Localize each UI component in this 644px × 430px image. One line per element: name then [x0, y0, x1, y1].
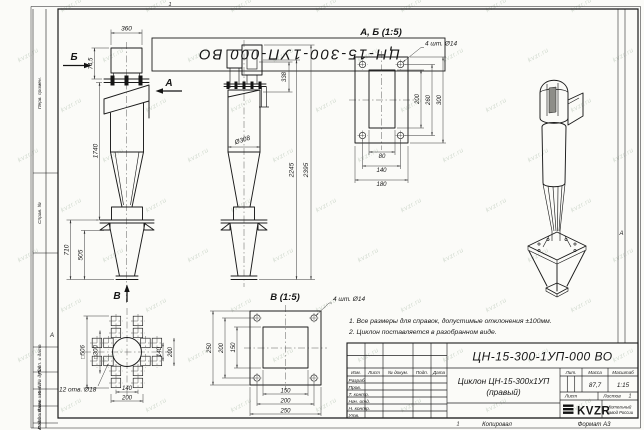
- view-title: В (1:5): [270, 292, 300, 303]
- dim-label: 200: [279, 399, 291, 405]
- notes: 1. Все размеры для справок, допустимые о…: [348, 317, 552, 336]
- logo-text: KVZR: [577, 406, 611, 418]
- zone-number-top: 1: [168, 2, 171, 8]
- product-name: Циклон ЦН-15-300х1УП: [458, 376, 550, 386]
- dim-label: 74,5: [89, 57, 95, 69]
- dim-label: 505: [78, 249, 85, 260]
- dim-label: 250: [279, 409, 291, 415]
- side-view: Ø308 338 2245 2395: [221, 40, 315, 287]
- dim-label: 1740: [93, 143, 100, 158]
- staff-row: Утв.: [349, 413, 360, 419]
- staff-row: Т. контр.: [349, 392, 370, 398]
- dim-label: 300: [437, 94, 443, 105]
- staff-row: Пров.: [349, 385, 362, 391]
- company-name: завод России: [606, 410, 634, 415]
- company-logo: KVZR: [563, 405, 611, 418]
- dim-label: □300: [94, 345, 100, 359]
- zone-letter-right: А: [618, 231, 623, 237]
- staff-row: Разраб.: [349, 378, 366, 384]
- dim-label: 150: [280, 389, 291, 395]
- zone-letter-left: А: [49, 333, 54, 339]
- header-col: Дата: [432, 370, 446, 375]
- dim-label: 140: [157, 346, 163, 357]
- corner-stamp: ЦН-15-300-1УП-000 ВО: [152, 38, 445, 71]
- doc-number: ЦН-15-300-1УП-000 ВО: [472, 350, 612, 364]
- dim-label: 710: [64, 244, 71, 255]
- strip-label: Справ. №: [37, 202, 43, 224]
- front-view: 360 74,5 1740 710 505 Б А В: [63, 26, 182, 304]
- format-label: Формат А3: [578, 422, 611, 428]
- section-label-a: А: [164, 78, 172, 89]
- header-col: Лист: [367, 370, 380, 375]
- staff-row: Н. контр.: [349, 406, 371, 412]
- product-name: (правый): [486, 387, 521, 397]
- header-col: Изм.: [351, 370, 361, 375]
- drawing-canvas: А А 1 1 Перв. примен. Справ. № Подп. и д…: [0, 0, 644, 430]
- holes-note: 12 отв. Ø18: [59, 387, 97, 394]
- staff-row: Нач. отд.: [349, 399, 371, 405]
- scale-label: Масштаб: [612, 370, 634, 375]
- isometric-view: [528, 80, 586, 297]
- flange-v-view: В (1:5) 4 шт. Ø14 150 200 250 150: [207, 292, 365, 416]
- view-title: А, Б (1:5): [359, 27, 402, 38]
- company-name: Котельный: [609, 405, 632, 410]
- dim-label: 250: [207, 342, 213, 354]
- sheets-label: Листов: [602, 394, 621, 400]
- left-strip-labels: Перв. примен. Справ. № Подп. и дата Инв.…: [37, 77, 43, 430]
- sheets-value: 1: [629, 394, 632, 400]
- dim-label: 2395: [303, 162, 310, 178]
- dim-label: 140: [122, 386, 133, 392]
- dim-label: Ø308: [233, 135, 252, 147]
- mass-label: Масса: [588, 370, 602, 375]
- holes-note: 4 шт. Ø14: [425, 41, 457, 48]
- dim-label: 2245: [289, 162, 296, 178]
- scale-value: 1:15: [617, 382, 630, 389]
- dim-label: 338: [282, 71, 288, 82]
- dim-label: 200: [219, 342, 225, 354]
- dim-label: 200: [168, 346, 174, 358]
- strip-label: Перв. примен.: [37, 77, 43, 109]
- dim-label: 260: [426, 94, 432, 106]
- strip-label: Инв. № подл.: [37, 413, 43, 430]
- dim-label: 80: [379, 154, 386, 160]
- lit-label: Лит.: [565, 370, 577, 375]
- section-label-b: Б: [70, 52, 77, 63]
- dim-label: 150: [231, 342, 237, 353]
- copied-label: Копировал: [482, 422, 512, 428]
- dim-label: 180: [376, 182, 387, 188]
- zone-number-bottom: 1: [456, 422, 459, 428]
- mass-value: 87,7: [589, 382, 602, 389]
- dim-label: 200: [415, 93, 421, 105]
- frame-footer: Копировал Формат А3: [482, 422, 611, 428]
- dim-label: □506: [81, 345, 87, 359]
- holes-note: 4 шт. Ø14: [333, 296, 365, 303]
- header-col: № докум.: [388, 370, 408, 375]
- base-view: □506 □300 12 отв. Ø18 140 200 140 200: [59, 308, 174, 403]
- note-line: 1. Все размеры для справок, допустимые о…: [349, 317, 552, 325]
- dim-label: 200: [121, 395, 133, 401]
- sheet-label: Лист: [564, 394, 577, 400]
- title-block: ЦН-15-300-1УП-000 ВО Изм. Лист № докум. …: [347, 343, 638, 419]
- section-label-v: В: [113, 291, 120, 302]
- drawing-sheet: kvzr.rukvzr.rukvzr.rukvzr.rukvzr.rukvzr.…: [0, 0, 644, 430]
- dim-label: 360: [121, 26, 132, 33]
- note-line: 2. Циклон поставляется в разобранном вид…: [348, 328, 497, 336]
- dim-label: 140: [376, 168, 387, 174]
- header-col: Подп.: [416, 370, 428, 375]
